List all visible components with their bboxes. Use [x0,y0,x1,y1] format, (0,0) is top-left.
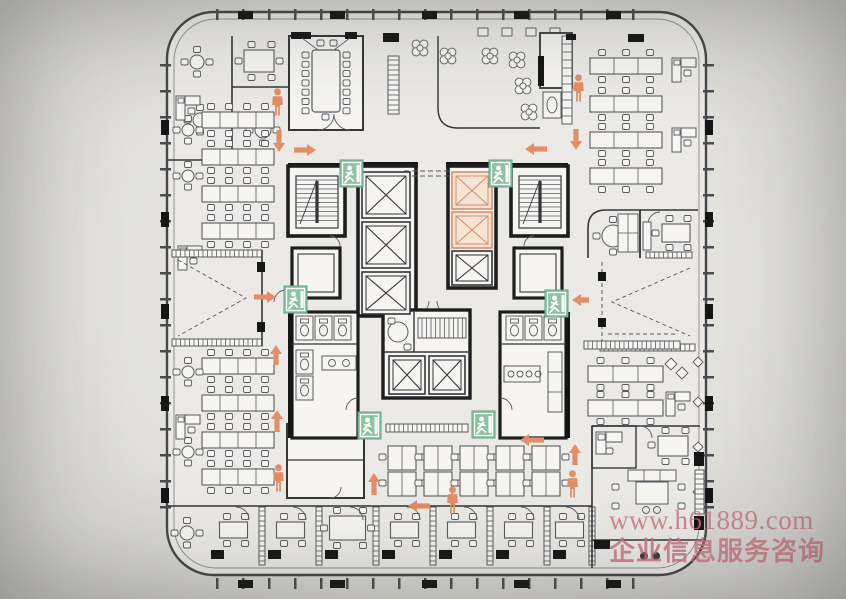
elevator-cell [389,356,425,394]
elevator-cell-highlighted [452,212,492,248]
elevator-cell [362,222,410,268]
elevator-cell [452,251,492,285]
floor-plan-drawing [0,0,846,599]
exit-sign-icon [472,411,495,438]
exit-sign-icon [284,286,307,313]
exit-sign-icon [358,412,381,439]
elevator-cell [362,172,410,218]
exit-sign-icon [545,290,568,317]
floor-plan-photo: www.h61889.com 企业信息服务咨询 [0,0,846,599]
exit-sign-icon [340,160,363,187]
elevator-cell [429,356,465,394]
exit-sign-icon [489,160,512,187]
elevator-cell-highlighted [452,172,492,209]
elevator-cell [362,272,410,314]
